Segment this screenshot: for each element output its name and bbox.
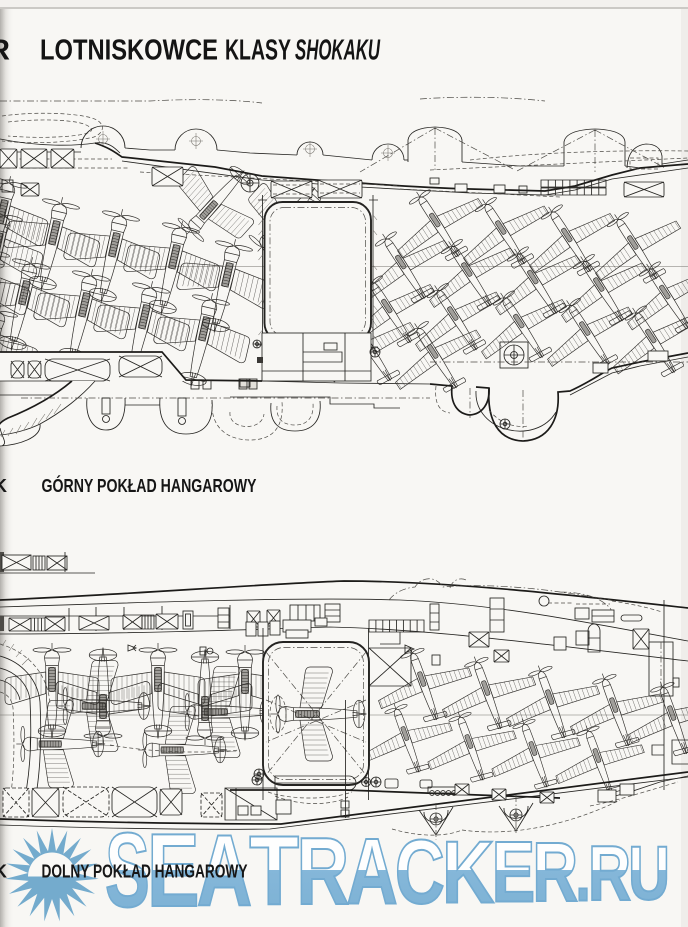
svg-text:C: C (395, 822, 445, 923)
svg-text:K: K (0, 862, 7, 882)
svg-text:K: K (0, 476, 7, 496)
svg-text:R: R (297, 818, 350, 925)
svg-text:KLASY: KLASY (225, 35, 291, 67)
svg-text:R: R (532, 825, 578, 919)
svg-text:DOLNY POKŁAD HANGAROWY: DOLNY POKŁAD HANGAROWY (42, 862, 248, 882)
svg-text:E: E (492, 825, 536, 921)
svg-text:R: R (588, 829, 631, 917)
svg-text:SHOKAKU: SHOKAKU (295, 35, 381, 67)
svg-text:K: K (442, 822, 494, 921)
svg-text:T: T (249, 816, 299, 926)
svg-text:U: U (628, 831, 670, 916)
svg-text:GÓRNY POKŁAD HANGAROWY: GÓRNY POKŁAD HANGAROWY (42, 475, 257, 496)
svg-text:A: A (346, 819, 397, 924)
svg-text:LOTNISKOWCE: LOTNISKOWCE (40, 35, 218, 67)
svg-text:R: R (0, 35, 10, 67)
